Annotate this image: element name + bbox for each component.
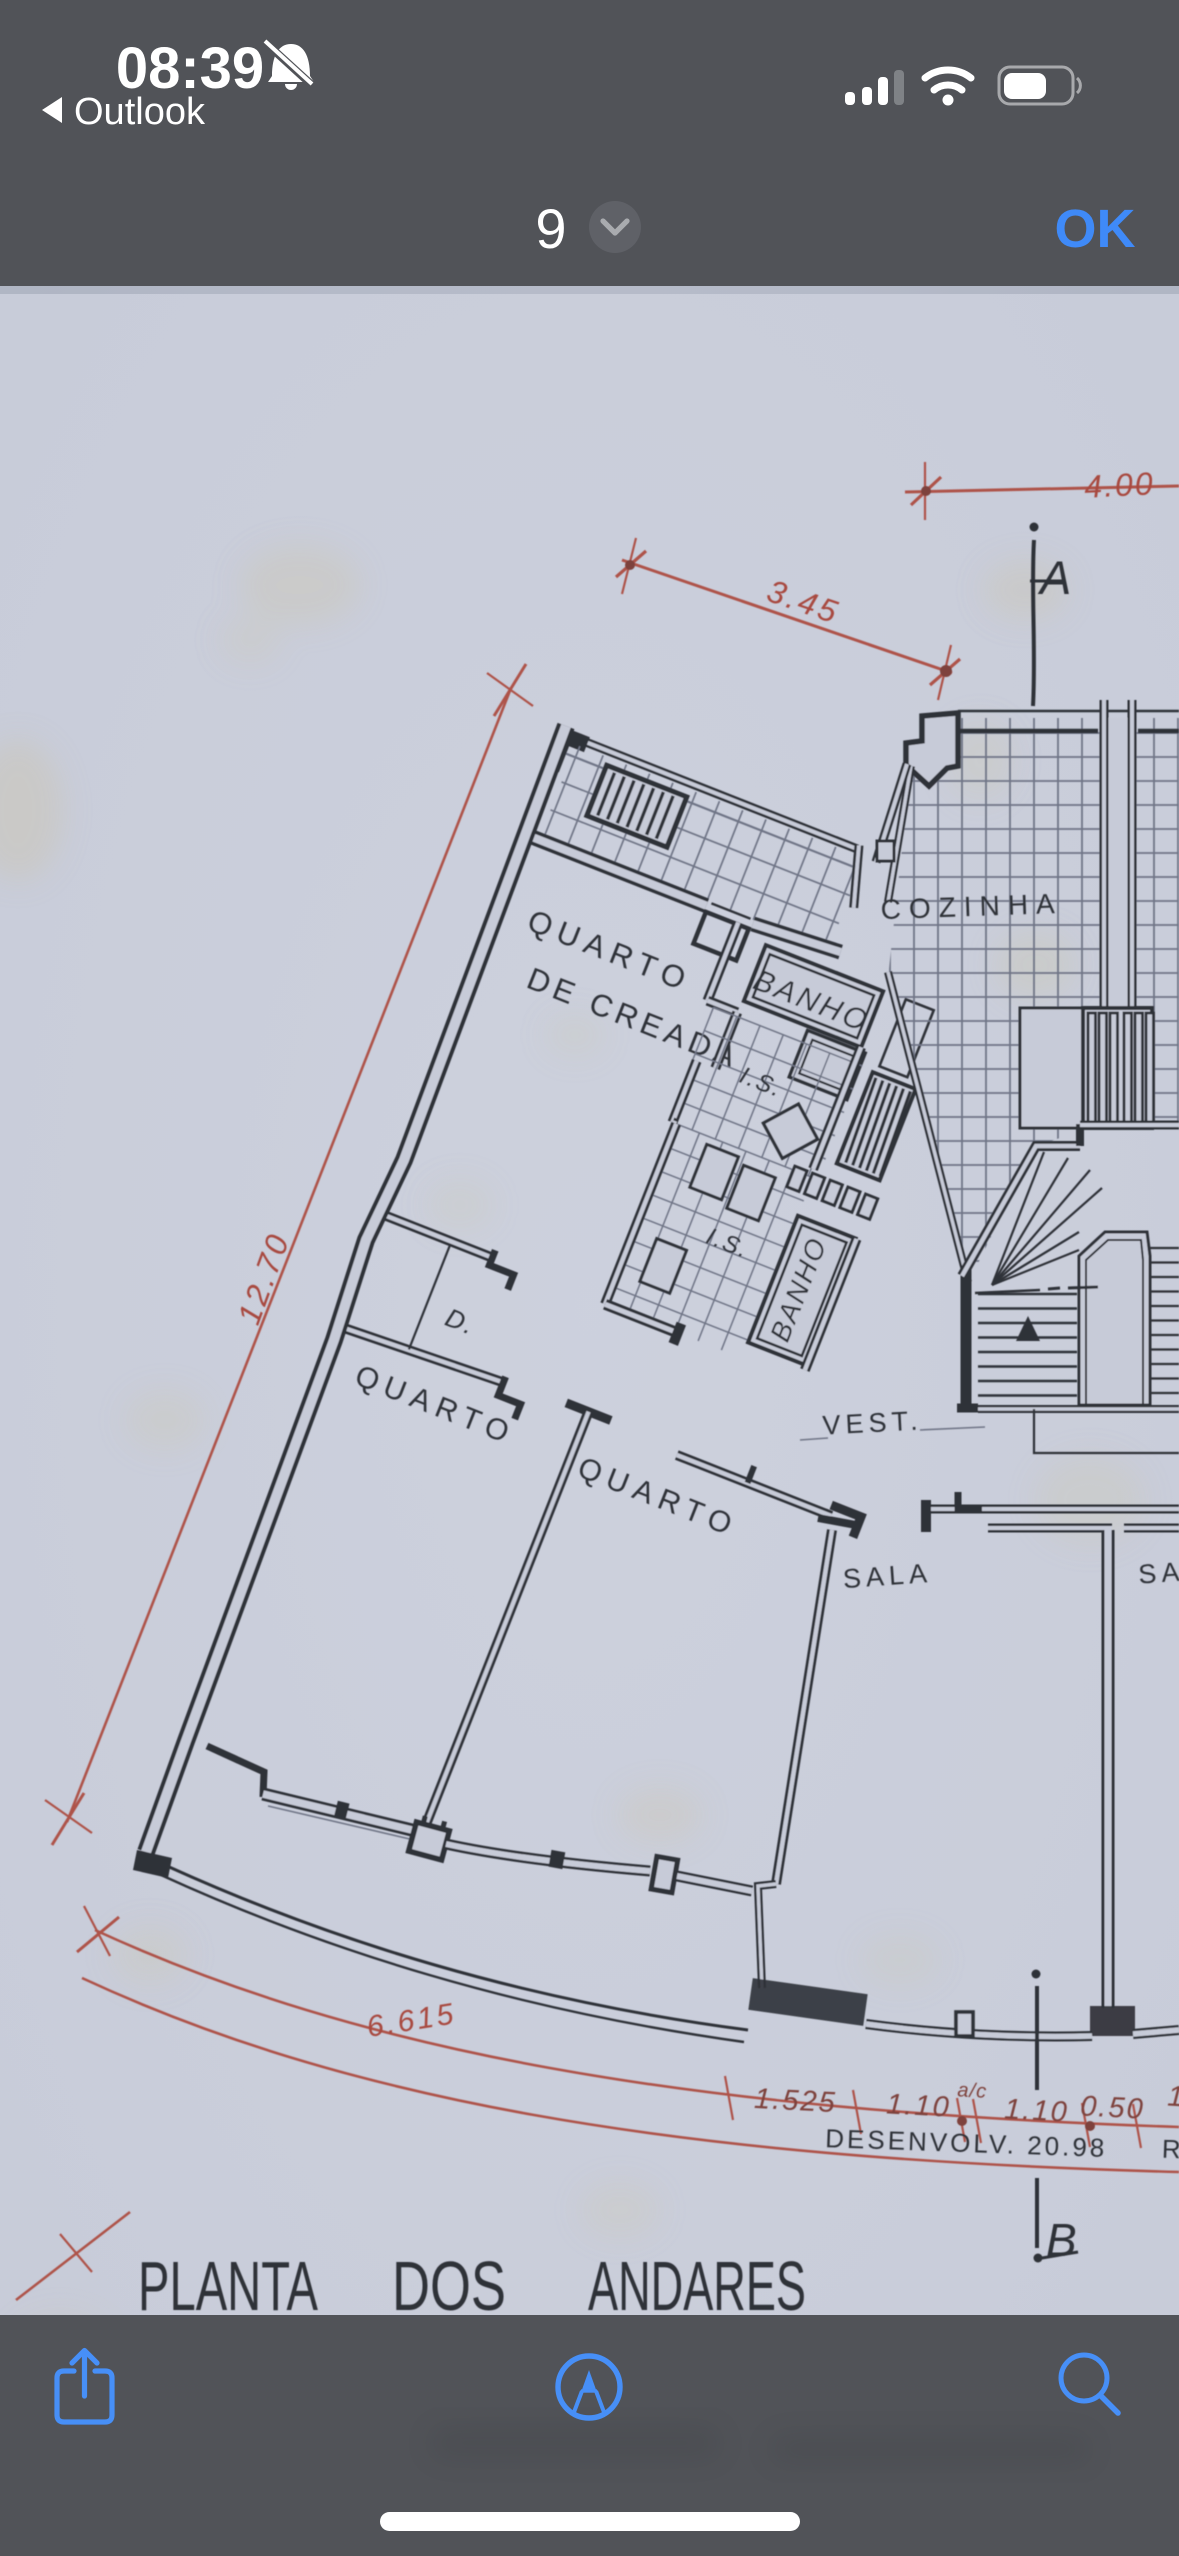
svg-text:R: R bbox=[1161, 2134, 1179, 2165]
svg-text:0.50: 0.50 bbox=[1079, 2090, 1145, 2125]
svg-text:Outlook: Outlook bbox=[74, 91, 206, 133]
svg-text:VEST.: VEST. bbox=[822, 1405, 923, 1440]
svg-text:9: 9 bbox=[535, 197, 566, 260]
svg-text:1.10: 1.10 bbox=[1003, 2093, 1069, 2128]
svg-text:COZINHA: COZINHA bbox=[880, 888, 1063, 925]
svg-text:1.10: 1.10 bbox=[885, 2088, 951, 2123]
svg-text:SALA: SALA bbox=[842, 1558, 933, 1594]
svg-text:B: B bbox=[1046, 2214, 1077, 2266]
svg-text:1: 1 bbox=[1167, 2081, 1179, 2114]
svg-text:1.525: 1.525 bbox=[753, 2083, 837, 2119]
svg-text:a/c: a/c bbox=[957, 2079, 988, 2103]
svg-text:A: A bbox=[1037, 551, 1071, 604]
svg-text:SA: SA bbox=[1137, 1556, 1179, 1589]
svg-text:4.00: 4.00 bbox=[1083, 465, 1155, 505]
svg-text:OK: OK bbox=[1055, 199, 1136, 259]
svg-text:PLANTA: PLANTA bbox=[138, 2247, 318, 2325]
svg-text:ANDARES: ANDARES bbox=[588, 2247, 806, 2325]
svg-text:DOS: DOS bbox=[392, 2247, 506, 2325]
